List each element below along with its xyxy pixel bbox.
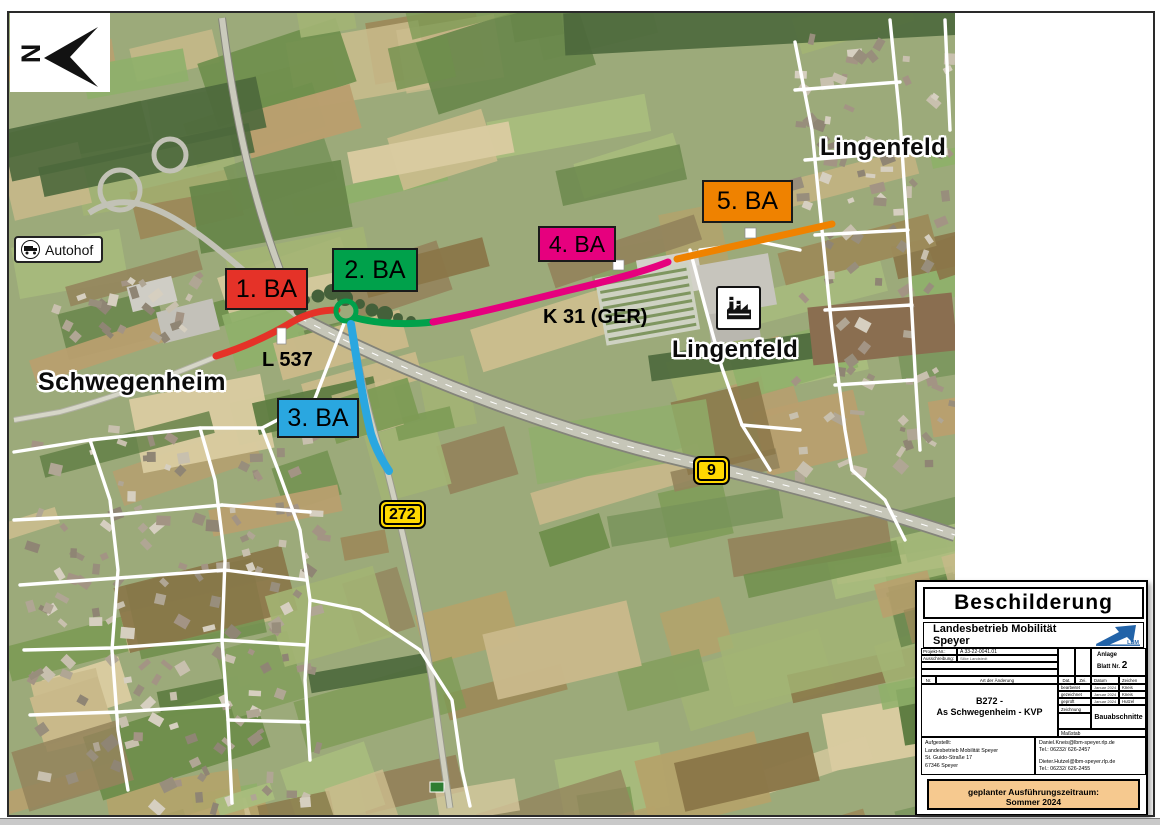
rev-header-zei: Zei. — [1075, 676, 1091, 684]
zeichnung-value: Bauabschnitte — [1091, 705, 1146, 729]
massstab-label: Maßstab — [1058, 729, 1146, 737]
factory-icon — [716, 286, 761, 330]
anlage-label: Anlage — [1097, 652, 1145, 658]
north-label: N — [14, 44, 45, 64]
document-title-line2: As Schwegenheim - KVP — [922, 707, 1057, 717]
truck-icon — [21, 240, 40, 259]
sign-row-zeichen: Hutzel — [1119, 698, 1146, 705]
contact-tel: Tel.: 06232/ 626-2457 — [1039, 747, 1145, 754]
sign-row-role: bearbeitet — [1058, 684, 1091, 691]
project-nr-label: Projekt-Nr.: — [921, 648, 957, 655]
aerial-imagery — [9, 13, 955, 816]
schedule-box: geplanter Ausführungszeitraum: Sommer 20… — [927, 779, 1140, 810]
lbm-logo: LBM — [1096, 624, 1140, 646]
town-label-lingenfeld-industrial: Lingenfeld — [672, 336, 798, 364]
sign-row-zeichen: Kneis — [1119, 684, 1146, 691]
empty-cell — [1058, 713, 1091, 729]
sign-row-zeichen: Kneis — [1119, 691, 1146, 698]
titleblock-title-box: Beschilderung — [923, 587, 1144, 619]
empty-row — [921, 669, 1058, 676]
empty-cell — [1075, 648, 1091, 676]
sign-row-role: geprüft — [1058, 698, 1091, 705]
aerial-map — [9, 13, 955, 816]
rev-header-art: Art der Änderung — [936, 676, 1058, 684]
blatt-nr: 2 — [1122, 660, 1128, 671]
page-edge — [0, 818, 1160, 825]
agency-name: Landesbetrieb Mobilität Speyer — [933, 623, 1096, 647]
contact-email: Daniel.Kneis@lbm-speyer.rlp.de — [1039, 740, 1145, 747]
empty-row — [921, 662, 1058, 669]
sign-header-zeichen: Zeichen — [1119, 676, 1146, 684]
route-shield-b272: 272 — [379, 500, 426, 529]
zeichnung-label: Zeichnung — [1058, 705, 1091, 713]
phase-box-2: 2. BA — [332, 248, 418, 292]
aufgestellt-line: 67346 Speyer — [925, 763, 1034, 771]
sign-row-datum: Januar 2024 — [1091, 691, 1119, 698]
aufgestellt-label: Aufgestellt: — [925, 740, 1034, 748]
road-label-l537: L 537 — [262, 349, 313, 372]
anlage-cell: Anlage Blatt Nr. 2 — [1091, 648, 1146, 676]
sign-row-role: gezeichnet — [1058, 691, 1091, 698]
phase-box-5: 5. BA — [702, 180, 793, 223]
contacts-cell: Daniel.Kneis@lbm-speyer.rlp.de Tel.: 062… — [1035, 737, 1146, 775]
shield-number-9: 9 — [697, 460, 726, 481]
empty-cell — [1058, 648, 1075, 676]
shield-number-272: 272 — [383, 504, 422, 525]
north-arrow: N — [10, 13, 110, 92]
phase-box-4: 4. BA — [538, 226, 616, 262]
aufgestellt-cell: Aufgestellt: Landesbetrieb Mobilität Spe… — [921, 737, 1035, 775]
rev-header-nr: Nr. — [921, 676, 936, 684]
route-shield-b9: 9 — [693, 456, 730, 485]
town-label-schwegenheim: Schwegenheim — [38, 368, 226, 397]
titleblock-agency-box: Landesbetrieb Mobilität Speyer LBM — [923, 622, 1144, 648]
aufgestellt-line: Landesbetrieb Mobilität Speyer — [925, 748, 1034, 756]
sign-row-datum: Januar 2024 — [1091, 698, 1119, 705]
autohof-badge: Autohof — [14, 236, 103, 263]
aufgestellt-line: St. Guido-Straße 17 — [925, 755, 1034, 763]
town-label-lingenfeld: Lingenfeld — [820, 134, 946, 162]
sign-row-datum: Januar 2024 — [1091, 684, 1119, 691]
schedule-line1: geplanter Ausführungszeitraum: — [929, 787, 1138, 797]
road-label-k31: K 31 (GER) — [543, 306, 647, 329]
ausschreibung-value: Silke Landstedt — [957, 655, 1058, 662]
rev-header-dat: Dat. — [1058, 676, 1075, 684]
autohof-label: Autohof — [45, 242, 93, 258]
schedule-line2: Sommer 2024 — [929, 797, 1138, 807]
plan-sheet: N Autohof Schwegenheim Lingenfeld Lingen… — [0, 0, 1160, 825]
blatt-label: Blatt Nr. — [1097, 664, 1120, 670]
phase-box-3: 3. BA — [277, 398, 359, 438]
document-title-cell: B272 - As Schwegenheim - KVP — [921, 684, 1058, 737]
lbm-logo-text: LBM — [1127, 640, 1139, 646]
phase-box-1: 1. BA — [225, 268, 308, 310]
sign-header-datum: Datum — [1091, 676, 1119, 684]
contact-email: Dieter.Hutzel@lbm-speyer.rlp.de — [1039, 759, 1145, 766]
project-nr-value: A 33-22-0041.01 — [957, 648, 1058, 655]
document-title-line1: B272 - — [922, 696, 1057, 706]
title-block: Beschilderung Landesbetrieb Mobilität Sp… — [915, 580, 1148, 816]
contact-tel: Tel.: 06232/ 626-2455 — [1039, 766, 1145, 773]
titleblock-title: Beschilderung — [954, 591, 1113, 614]
ausschreibung-label: Ausschreibung: — [921, 655, 957, 662]
